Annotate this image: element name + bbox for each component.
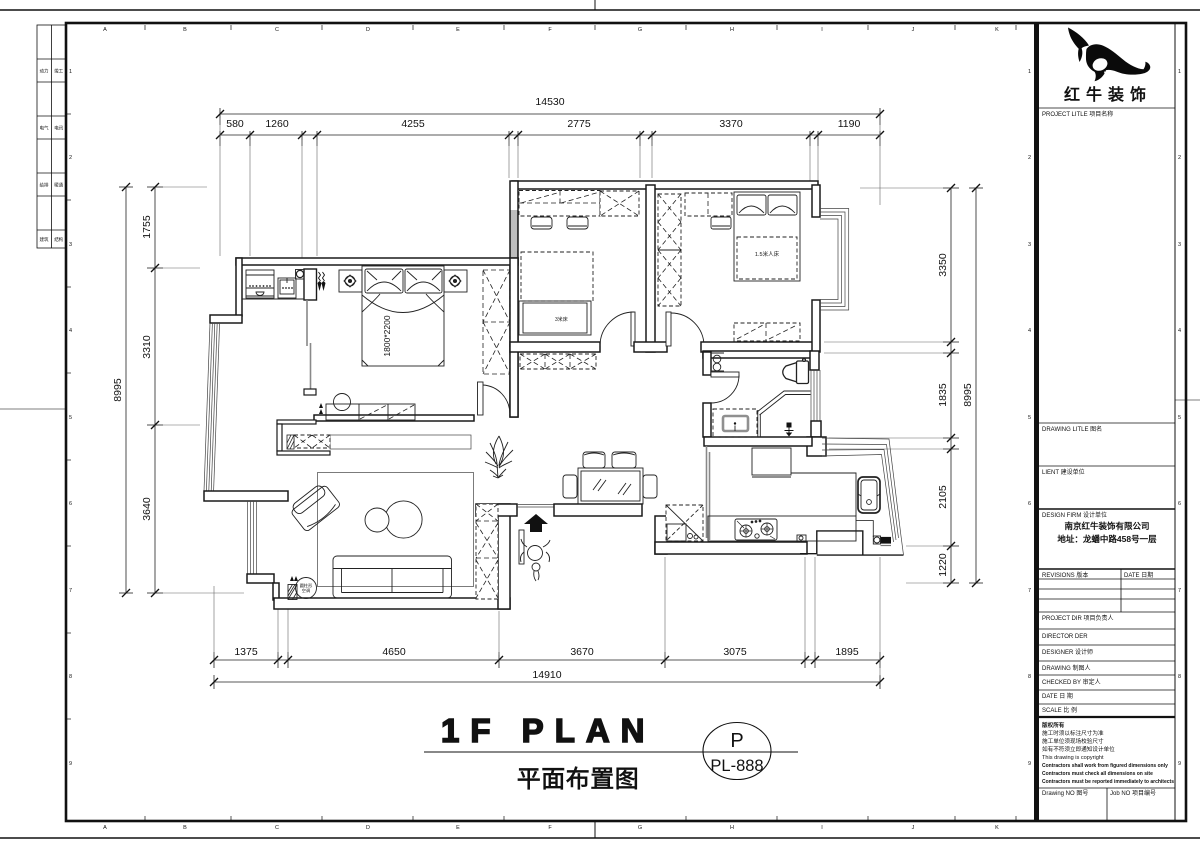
svg-text:1800*2200: 1800*2200 <box>382 315 392 356</box>
svg-text:9: 9 <box>69 761 72 767</box>
svg-text:SCALE 比 例: SCALE 比 例 <box>1042 706 1077 714</box>
svg-text:1: 1 <box>69 69 72 75</box>
svg-text:4255: 4255 <box>401 118 425 130</box>
svg-text:3米床: 3米床 <box>555 316 568 323</box>
svg-text:施工时须以标注尺寸为准: 施工时须以标注尺寸为准 <box>1042 729 1104 737</box>
svg-text:G: G <box>638 825 642 831</box>
svg-text:竣工: 竣工 <box>54 68 63 75</box>
svg-text:8995: 8995 <box>112 378 124 402</box>
svg-text:4: 4 <box>69 328 72 334</box>
svg-text:DRAWING 制图人: DRAWING 制图人 <box>1042 664 1090 672</box>
svg-text:PROJECT DIR 项目负责人: PROJECT DIR 项目负责人 <box>1042 614 1114 622</box>
svg-text:Drawing NO 图号: Drawing NO 图号 <box>1042 790 1088 797</box>
svg-text:2105: 2105 <box>937 485 949 509</box>
svg-text:This drawing is copyright: This drawing is copyright <box>1042 755 1104 761</box>
svg-text:7: 7 <box>1028 588 1031 594</box>
svg-text:580: 580 <box>226 118 244 130</box>
svg-text:1: 1 <box>1178 69 1181 75</box>
svg-text:电讯: 电讯 <box>54 125 63 132</box>
svg-text:6: 6 <box>69 501 72 507</box>
svg-text:Job NO 项目编号: Job NO 项目编号 <box>1110 789 1156 797</box>
svg-text:3670: 3670 <box>570 646 594 658</box>
svg-text:D: D <box>366 825 370 831</box>
svg-text:1220: 1220 <box>937 553 949 577</box>
svg-text:建筑: 建筑 <box>40 236 49 243</box>
svg-text:1: 1 <box>1028 69 1031 75</box>
svg-text:REVISIONS 版本: REVISIONS 版本 <box>1042 571 1088 579</box>
svg-text:DATE 日 期: DATE 日 期 <box>1042 692 1073 700</box>
svg-text:6: 6 <box>1178 501 1181 507</box>
svg-text:8: 8 <box>1028 674 1031 680</box>
svg-text:3: 3 <box>1178 242 1181 248</box>
svg-text:J: J <box>912 27 915 33</box>
svg-text:6: 6 <box>1028 501 1031 507</box>
svg-text:8: 8 <box>69 674 72 680</box>
svg-text:2: 2 <box>1178 155 1181 161</box>
svg-text:5: 5 <box>1178 415 1181 421</box>
svg-text:B: B <box>183 27 187 33</box>
svg-text:LIENT 建设单位: LIENT 建设单位 <box>1042 468 1085 476</box>
svg-text:A: A <box>103 27 107 33</box>
svg-text:DIRECTOR DER: DIRECTOR DER <box>1042 634 1088 640</box>
svg-text:动力: 动力 <box>40 68 49 75</box>
svg-text:14910: 14910 <box>532 669 561 681</box>
svg-text:南京红牛装饰有限公司: 南京红牛装饰有限公司 <box>1064 521 1149 531</box>
svg-text:C: C <box>275 825 279 831</box>
svg-text:PROJECT LITLE 项目名称: PROJECT LITLE 项目名称 <box>1042 110 1113 118</box>
svg-text:DESIGN FIRM 设计单位: DESIGN FIRM 设计单位 <box>1042 511 1107 519</box>
svg-text:K: K <box>995 27 999 33</box>
svg-text:PL-888: PL-888 <box>710 757 763 775</box>
svg-text:DRAWING LITLE 图名: DRAWING LITLE 图名 <box>1042 425 1102 433</box>
svg-text:5: 5 <box>69 415 72 421</box>
svg-text:1190: 1190 <box>838 118 861 130</box>
svg-text:1260: 1260 <box>265 118 289 130</box>
svg-text:Contractors shall work from fi: Contractors shall work from figured dime… <box>1042 763 1168 769</box>
svg-text:3: 3 <box>1028 242 1031 248</box>
svg-text:8995: 8995 <box>962 383 974 407</box>
svg-text:D: D <box>366 27 370 33</box>
svg-text:1F PLAN: 1F PLAN <box>441 712 656 749</box>
svg-text:Contractors must check all dim: Contractors must check all dimensions on… <box>1042 771 1153 777</box>
svg-text:DESIGNER 设计师: DESIGNER 设计师 <box>1042 648 1093 656</box>
svg-text:平面布置图: 平面布置图 <box>517 766 640 793</box>
svg-text:7: 7 <box>1178 588 1181 594</box>
svg-text:4: 4 <box>1028 328 1031 334</box>
svg-text:K: K <box>995 825 999 831</box>
svg-text:14530: 14530 <box>535 96 564 108</box>
svg-text:3350: 3350 <box>937 253 949 277</box>
svg-text:给排: 给排 <box>40 182 49 189</box>
svg-text:DATE 日期: DATE 日期 <box>1124 571 1153 579</box>
svg-text:2: 2 <box>1028 155 1031 161</box>
svg-text:结构: 结构 <box>54 236 63 243</box>
svg-text:红牛装饰: 红牛装饰 <box>1064 85 1152 104</box>
svg-text:J: J <box>912 825 915 831</box>
svg-text:CHECKED BY 审定人: CHECKED BY 审定人 <box>1042 678 1101 686</box>
svg-text:暖通: 暖通 <box>54 182 63 189</box>
svg-text:H: H <box>730 825 734 831</box>
svg-text:3370: 3370 <box>719 118 743 130</box>
svg-text:3: 3 <box>69 242 72 248</box>
svg-text:1755: 1755 <box>141 215 153 239</box>
svg-text:1.5米人床: 1.5米人床 <box>755 250 780 258</box>
svg-text:施工单位须现场校验尺寸: 施工单位须现场校验尺寸 <box>1042 737 1104 745</box>
svg-text:4650: 4650 <box>382 646 406 658</box>
svg-text:H: H <box>730 27 734 33</box>
svg-text:8: 8 <box>1178 674 1181 680</box>
svg-text:电气: 电气 <box>40 125 49 131</box>
svg-text:如有不符须立即通知设计单位: 如有不符须立即通知设计单位 <box>1042 745 1115 753</box>
svg-text:3640: 3640 <box>141 497 153 521</box>
svg-text:7: 7 <box>69 588 72 594</box>
svg-text:1375: 1375 <box>234 646 258 658</box>
svg-text:地址：龙蟠中路458号一层: 地址：龙蟠中路458号一层 <box>1057 534 1157 544</box>
svg-text:1895: 1895 <box>835 646 859 658</box>
svg-text:E: E <box>456 27 460 33</box>
svg-text:4: 4 <box>1178 328 1181 334</box>
svg-text:空调: 空调 <box>302 587 310 594</box>
svg-text:2: 2 <box>69 155 72 161</box>
svg-text:B: B <box>183 825 187 831</box>
svg-text:1835: 1835 <box>937 383 949 407</box>
svg-text:3310: 3310 <box>141 335 153 359</box>
svg-text:E: E <box>456 825 460 831</box>
svg-text:C: C <box>275 27 279 33</box>
svg-text:5: 5 <box>1028 415 1031 421</box>
svg-text:3075: 3075 <box>723 646 747 658</box>
svg-text:P: P <box>730 730 743 752</box>
svg-text:A: A <box>103 825 107 831</box>
svg-text:9: 9 <box>1178 761 1181 767</box>
svg-text:9: 9 <box>1028 761 1031 767</box>
svg-text:G: G <box>638 27 642 33</box>
svg-text:2775: 2775 <box>567 118 591 130</box>
svg-text:Contractors must be reported i: Contractors must be reported immediately… <box>1042 779 1174 785</box>
svg-text:版权所有: 版权所有 <box>1041 721 1065 729</box>
